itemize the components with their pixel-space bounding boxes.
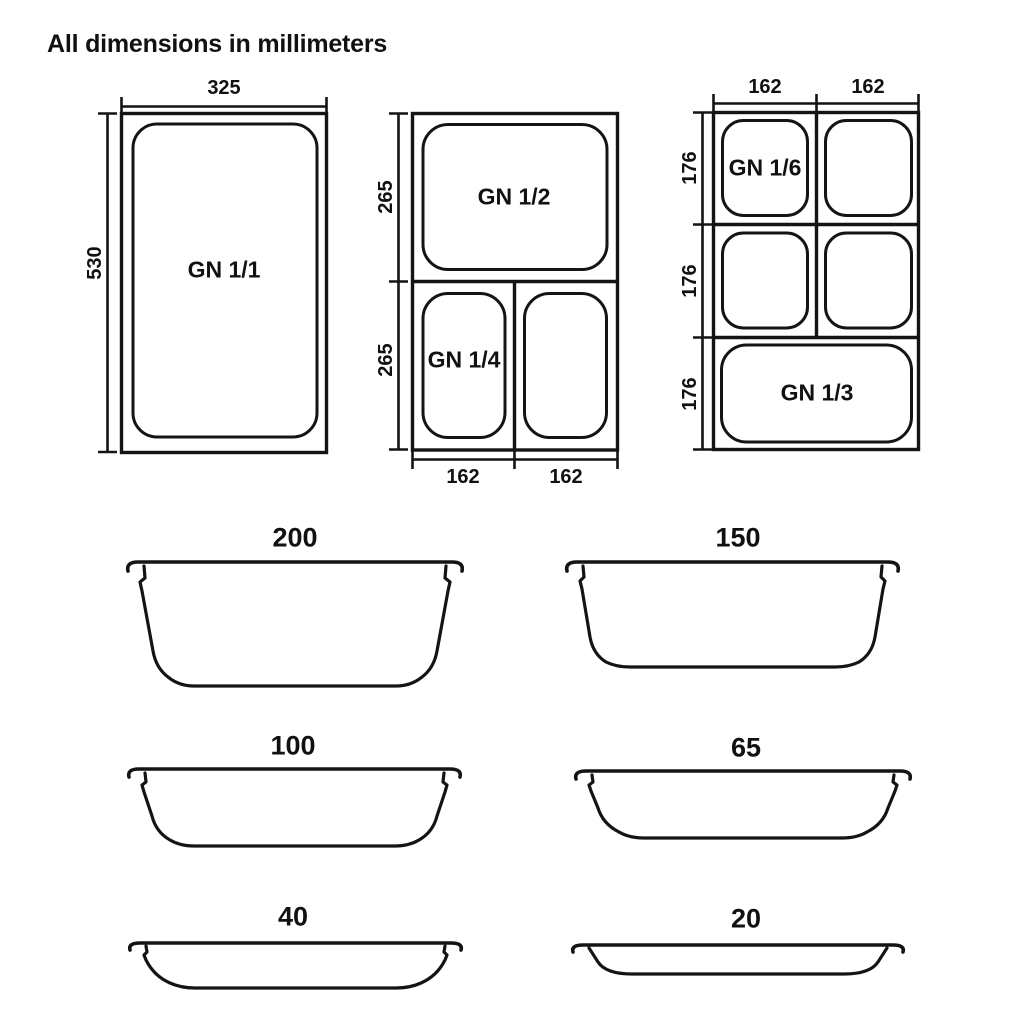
gn16-width-right-dim-label: 162 [851, 77, 884, 97]
gn16-height-top-dim-label: 176 [680, 151, 700, 184]
profile-100-rim [129, 769, 461, 777]
diagram-canvas: All dimensions in millimeters [0, 0, 1024, 1024]
gn16-height-bottom-dim-label: 176 [680, 377, 700, 410]
side-profiles [128, 562, 911, 988]
gn13-pan-label: GN 1/3 [781, 382, 854, 405]
profile-20 [573, 945, 904, 974]
profile-40-rim [130, 943, 462, 950]
profile-20-body [589, 948, 887, 974]
profile-200 [128, 562, 463, 686]
profile-40 [130, 943, 462, 988]
gn16-pan-outline-top-right [826, 121, 912, 216]
gn14-pan-outline-right [525, 294, 607, 438]
gn11-pan-label: GN 1/1 [188, 259, 261, 282]
profile-100-body [142, 773, 447, 846]
gn11-height-dim-label: 530 [85, 246, 105, 279]
gn16-width-left-dim-label: 162 [748, 77, 781, 97]
profile-40-depth-label: 40 [278, 904, 308, 931]
profile-20-depth-label: 20 [731, 906, 761, 933]
profile-200-body [140, 566, 450, 686]
profile-65-body [589, 775, 897, 838]
profile-200-rim [128, 562, 463, 571]
gn11-width-dim-label: 325 [207, 78, 240, 98]
gn11-outer-rect [122, 114, 327, 453]
profile-65-depth-label: 65 [731, 735, 761, 762]
gn12-gn14-top-view [389, 113, 618, 469]
gn16-pan-outline-mid-right [826, 233, 912, 328]
profile-40-body [144, 946, 447, 988]
gn16-height-middle-dim-label: 176 [680, 264, 700, 297]
profile-150 [567, 562, 899, 667]
gn16-pan-label: GN 1/6 [729, 157, 802, 180]
gn12-pan-label: GN 1/2 [478, 186, 551, 209]
gn14-pan-label: GN 1/4 [428, 349, 501, 372]
gn12-width-left-dim-label: 162 [446, 467, 479, 487]
profile-100 [129, 769, 461, 846]
diagram-linework [0, 0, 1024, 1024]
gn12-width-right-dim-label: 162 [549, 467, 582, 487]
gn12-height-top-dim-label: 265 [376, 180, 396, 213]
gn16-pan-outline-mid-left [723, 233, 808, 328]
profile-150-depth-label: 150 [715, 525, 760, 552]
profile-20-rim [573, 945, 904, 952]
profile-65 [576, 771, 911, 838]
profile-150-rim [567, 562, 899, 571]
profile-150-body [580, 566, 885, 667]
gn12-height-bottom-dim-label: 265 [376, 343, 396, 376]
profile-200-depth-label: 200 [272, 525, 317, 552]
profile-100-depth-label: 100 [270, 733, 315, 760]
profile-65-rim [576, 771, 911, 779]
